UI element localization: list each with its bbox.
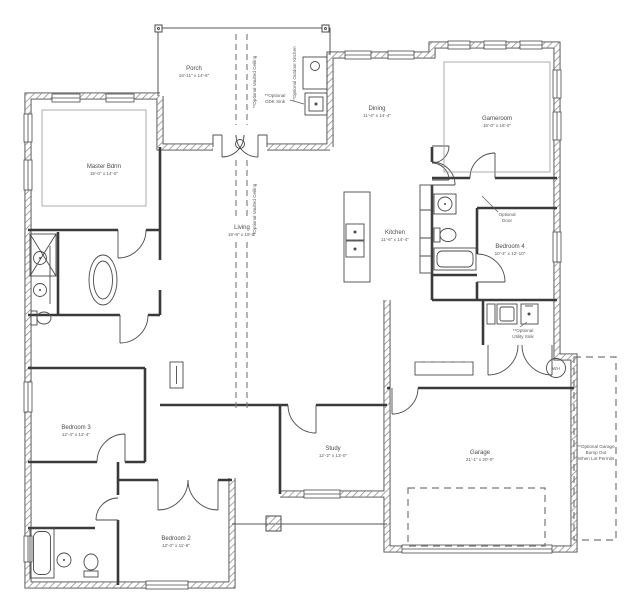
svg-text:**Optional: **Optional <box>265 93 286 98</box>
room-dims-porch: 16'-11" x 14'-6" <box>179 73 210 78</box>
outdoor-kitchen-fixtures <box>303 57 327 115</box>
room-label-kitchen: Kitchen <box>385 230 405 236</box>
room-dims-gameroom: 16'-0" x 16'-0" <box>483 123 512 128</box>
annotation-vaulted-ceiling-porch: **Optional Vaulted Ceiling <box>252 55 257 108</box>
room-label-bedroom3: Bedroom 3 <box>61 425 91 431</box>
annotation-garage-bump-out: **Optional Garage Bump Out When Lot Perm… <box>577 444 615 461</box>
annotation-optional-door: Optional Door <box>482 196 516 223</box>
svg-text:**Optional Garage: **Optional Garage <box>577 444 615 449</box>
utility-fixtures <box>487 304 538 324</box>
annotation-utility-sink: **Optional Utility Sink <box>512 322 534 339</box>
kitchen-island <box>344 192 370 282</box>
toilet-icon <box>84 554 98 577</box>
svg-text:When Lot Permits: When Lot Permits <box>578 456 615 461</box>
room-dims-bedroom3: 12'-4" x 12'-4" <box>62 432 91 437</box>
room-dims-bedroom4: 10'-4" x 12'-10" <box>495 251 526 256</box>
svg-text:ODK Sink: ODK Sink <box>265 99 286 104</box>
annotation-odk-sink: **Optional ODK Sink <box>265 93 304 104</box>
room-label-bedroom4: Bedroom 4 <box>495 244 525 250</box>
bath3-fixtures <box>434 194 476 270</box>
interior-walls <box>28 147 574 585</box>
linen-closet <box>170 362 183 388</box>
toilet-icon <box>434 228 456 242</box>
room-dims-garage: 21'-1" x 20'-0" <box>466 457 495 462</box>
room-label-master: Master Bdrm <box>87 164 121 170</box>
patio-column <box>266 516 281 531</box>
room-label-gameroom: Gameroom <box>482 116 512 122</box>
garden-tub-icon <box>89 255 117 305</box>
svg-text:**Optional: **Optional <box>513 328 534 333</box>
room-dims-bedroom2: 12'-0" x 11'-6" <box>162 543 190 548</box>
room-dims-kitchen: 11'-6" x 14'-4" <box>381 237 409 242</box>
room-label-study: Study <box>325 446 340 452</box>
room-dims-master: 15'-0" x 14'-0" <box>90 171 119 176</box>
annotation-vaulted-ceiling-living: **Optional Vaulted Ceiling <box>252 183 257 236</box>
svg-text:Bump Out: Bump Out <box>586 450 607 455</box>
annotation-outdoor-kitchen: **Optional Outdoor Kitchen <box>292 46 297 102</box>
room-dims-study: 12'-2" x 13'-0" <box>319 453 348 458</box>
room-label-garage: Garage <box>470 450 491 456</box>
porch-post <box>155 25 162 32</box>
room-label-dining: Dining <box>368 106 385 112</box>
water-heater-label: WH <box>552 366 560 371</box>
room-dims-dining: 11'-4" x 14'-4" <box>363 113 391 118</box>
front-porch-outline <box>155 25 330 96</box>
room-label-porch: Porch <box>186 66 202 72</box>
garage-optional-area <box>408 488 545 546</box>
room-label-living: Living <box>234 225 250 231</box>
svg-text:Optional: Optional <box>498 212 515 217</box>
hall-bath-fixtures <box>30 528 98 578</box>
svg-text:Utility Sink: Utility Sink <box>512 334 534 339</box>
svg-text:Door: Door <box>502 218 512 223</box>
porch-post <box>322 25 329 32</box>
mud-bench <box>415 362 473 375</box>
kitchen-counter <box>420 185 432 273</box>
toilet-icon <box>31 311 51 325</box>
room-label-bedroom2: Bedroom 2 <box>161 536 191 542</box>
floor-plan-page: Porch 16'-11" x 14'-6" Master Bdrm 15'-0… <box>0 0 639 600</box>
floor-plan-drawing: Porch 16'-11" x 14'-6" Master Bdrm 15'-0… <box>0 0 639 600</box>
labels: Porch 16'-11" x 14'-6" Master Bdrm 15'-0… <box>61 46 615 548</box>
fixtures <box>30 57 566 578</box>
master-bath-fixtures <box>30 234 117 325</box>
